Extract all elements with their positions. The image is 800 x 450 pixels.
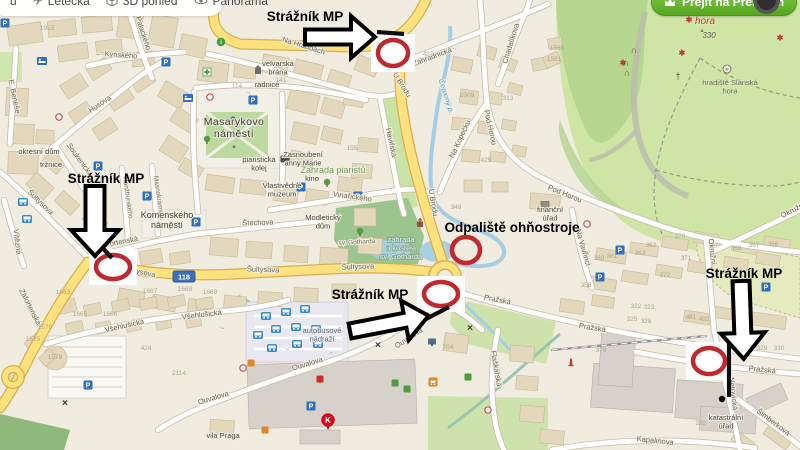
building (539, 429, 564, 445)
building (747, 311, 786, 329)
building (209, 237, 238, 257)
building (139, 248, 163, 266)
toolbar-item-panorama[interactable]: Panorama (186, 0, 276, 8)
building (197, 60, 229, 84)
map-toolbar: u ✈ Letecká 3D pohled Panorama (0, 0, 224, 16)
svg-text:✶: ✶ (231, 144, 236, 151)
bus-icon (253, 331, 263, 339)
svg-text:✱: ✱ (679, 49, 686, 58)
ring-icon (584, 221, 590, 227)
building (591, 295, 614, 309)
poi-label: piaristickákolej (242, 155, 276, 172)
house-number: 1667 (143, 288, 158, 295)
house-number: 557 (8, 437, 19, 444)
building (509, 345, 534, 363)
house-number: 1666 (103, 311, 118, 318)
street-label: Pražská (578, 321, 607, 334)
street-label: Vítězná (11, 229, 23, 256)
bus-icon (267, 344, 277, 352)
svg-text:P: P (764, 285, 769, 292)
greenbox-icon (465, 374, 472, 381)
svg-text:∩: ∩ (631, 45, 638, 55)
street-label: Záfortenská (17, 287, 43, 327)
greenbox-icon (392, 380, 399, 387)
svg-text:P: P (309, 404, 314, 411)
house-number: 1669 (203, 289, 218, 296)
house-number: 323 (644, 304, 655, 311)
svg-text:✕: ✕ (467, 324, 474, 333)
house-number: 372 (660, 272, 671, 279)
house-number: 348 (451, 204, 462, 211)
building (300, 430, 340, 444)
toolbar-partial-label: u (10, 0, 17, 8)
building (205, 174, 235, 194)
street-label: Pražská (748, 364, 777, 376)
svg-text:✱: ✱ (777, 34, 784, 43)
flower-icon: ✱ (686, 16, 693, 25)
mill-icon: ✕ (467, 324, 474, 333)
house-number: 2114 (172, 370, 186, 377)
building (515, 375, 538, 391)
parking-icon: P (94, 162, 103, 171)
house-number: 481 (686, 314, 697, 321)
pharmacy-icon (203, 68, 211, 76)
svg-text:P: P (194, 220, 199, 227)
bus-icon (300, 305, 310, 313)
kpin-icon: K (322, 414, 335, 431)
road-number-text: 118 (178, 273, 190, 282)
street-label: Šultysova (342, 261, 376, 271)
road-badges-layer: 118 (173, 271, 195, 282)
house-number: 425 (481, 157, 492, 164)
eye-icon (194, 0, 208, 6)
annotation-label: Strážník MP (267, 9, 344, 24)
building (92, 117, 118, 141)
street-label: Kapalinova (636, 434, 675, 447)
house-number: 367 (749, 242, 760, 249)
annotation-dot (719, 396, 725, 402)
shopO-icon (262, 427, 269, 434)
building (464, 180, 482, 192)
house-number: 424 (141, 345, 152, 352)
street-label: ← Kynského (95, 49, 138, 61)
ring-icon (207, 94, 213, 100)
bed-icon (37, 57, 47, 65)
dagger-icon: † (675, 71, 680, 81)
crown-icon (664, 0, 676, 7)
svg-text:→: → (245, 89, 252, 96)
bus-icon (18, 198, 28, 206)
svg-text:P: P (86, 383, 91, 390)
poi-label: 330 (702, 31, 716, 40)
building (36, 130, 54, 145)
building (321, 126, 344, 144)
toolbar-item-label: Panorama (213, 0, 268, 8)
monitor-icon (428, 339, 436, 347)
house-number: 1953 (40, 25, 55, 32)
building (354, 208, 376, 226)
poi-label: hora (695, 16, 715, 27)
house-number: 1576 (38, 324, 53, 331)
house-number: 358 (581, 282, 592, 289)
street-label: Šultysova (247, 264, 281, 274)
house-number: 325 (627, 316, 638, 323)
cave-icon: ∩ (624, 68, 631, 78)
building (81, 15, 112, 34)
ring-icon (240, 365, 246, 371)
toolbar-item-partial[interactable]: u (2, 0, 25, 8)
building (451, 56, 473, 73)
house-number: 313 (503, 95, 514, 102)
parking-icon: P (162, 58, 171, 67)
building (501, 119, 517, 131)
building (294, 288, 318, 303)
house-number: 368 (731, 245, 742, 252)
building (559, 298, 585, 314)
cart-icon (429, 378, 438, 387)
house-number: 328 (641, 318, 652, 325)
building (320, 97, 346, 118)
house-number: 482 (699, 316, 710, 323)
starcirc-icon: ✳ (723, 65, 731, 73)
svg-text:✱: ✱ (686, 16, 693, 25)
flower-icon: ✱ (777, 34, 784, 43)
building (167, 294, 186, 308)
house-number: 1581 (547, 56, 562, 63)
house-number: 1583 (550, 45, 565, 52)
dir-icon: → (218, 323, 227, 332)
building (492, 182, 508, 192)
memorial-icon (569, 359, 574, 367)
house-number: 370 (675, 233, 686, 240)
building (54, 190, 80, 215)
ring-icon (485, 407, 491, 413)
svg-text:†: † (675, 71, 680, 81)
bus-icon (22, 215, 32, 223)
parking-icon: P (143, 192, 152, 201)
building (489, 151, 506, 163)
house-number: 114 (232, 83, 243, 90)
house-number: 366 (768, 241, 779, 248)
svg-text:P: P (598, 275, 603, 282)
church-icon (417, 218, 423, 227)
house-number: 704 (443, 344, 454, 351)
parking-icon: P (762, 283, 771, 292)
annotation-label: Strážník MP (332, 287, 409, 302)
building (519, 405, 544, 423)
poi-label: radnice (255, 80, 280, 89)
dir-icon: → (245, 89, 252, 96)
building (290, 121, 319, 144)
cave-icon: ∩ (623, 58, 630, 68)
house-number: 329 (757, 345, 768, 352)
house-number: 362 (646, 242, 657, 249)
ring-icon (56, 114, 62, 120)
mill-icon: ✕ (375, 341, 382, 350)
bus-icon (261, 312, 271, 320)
house-number: 371 (681, 255, 692, 262)
svg-text:P: P (96, 164, 101, 171)
toolbar-item-label: Letecká (48, 0, 90, 8)
poi-label: kino (305, 174, 319, 183)
svg-text:P: P (164, 60, 169, 67)
annotation-label: Strážník MP (706, 266, 783, 281)
svg-text:✳: ✳ (725, 67, 729, 73)
house-number: 378 (596, 347, 607, 354)
building (621, 270, 648, 285)
building (57, 42, 89, 62)
toolbar-item-label: 3D pohled (123, 0, 178, 8)
svg-text:i: i (220, 39, 222, 46)
deco-icon: ✶ (231, 144, 236, 151)
house-number: 1663 (56, 289, 71, 296)
house-number: 1668 (178, 286, 193, 293)
parking-icon: P (249, 96, 258, 105)
toolbar-item-letecka[interactable]: ✈ Letecká (25, 0, 98, 8)
bus-icon (281, 308, 291, 316)
flower-icon: ✱ (679, 49, 686, 58)
info-icon: i (217, 38, 225, 46)
shopR-icon (317, 376, 324, 383)
poi-label: okresní dům (18, 147, 59, 156)
map-canvas[interactable]: 1953114141155423200931342534815831581360… (0, 0, 800, 450)
building (283, 245, 308, 263)
annotation-line (377, 32, 404, 34)
annotation-label: Odpaliště ohňostroje (444, 220, 580, 235)
building (598, 329, 636, 387)
house-number: 330 (774, 345, 785, 352)
svg-text:∩: ∩ (624, 68, 631, 78)
poi-label: vila Praga (206, 431, 240, 440)
bed-icon (183, 94, 193, 102)
poi-label: tržnice (40, 160, 62, 169)
parking-icon: P (1, 19, 10, 28)
house-number: 282 (696, 420, 707, 427)
svg-text:→: → (218, 323, 227, 332)
house-number: 2009 (460, 92, 475, 99)
map-screenshot: 1953114141155423200931342534815831581360… (0, 0, 800, 450)
toolbar-item-3d-pohled[interactable]: 3D pohled (98, 0, 186, 8)
street-label: Všehlušická (104, 316, 146, 334)
building (60, 73, 89, 99)
annotation-label: Strážník MP (68, 171, 145, 186)
bus-icon (271, 325, 281, 333)
greenbox-icon (404, 386, 411, 393)
building (245, 241, 272, 259)
house-number: 363 (635, 250, 646, 257)
house-number: 1578 (48, 354, 63, 361)
house-number: 155 (347, 145, 358, 152)
cube-3d-icon (106, 0, 118, 7)
house-number: 360 (594, 255, 605, 262)
house-number: 1575 (26, 336, 41, 343)
house-number: 1665 (73, 311, 88, 318)
svg-text:P: P (251, 98, 256, 105)
building (462, 149, 481, 163)
poi-label: Vlastivědnémuzeum (263, 181, 302, 198)
shopO-icon (248, 360, 255, 367)
parking-icon: P (616, 246, 625, 255)
street-label: Štechova (242, 217, 274, 227)
svg-text:K: K (325, 416, 331, 425)
building (357, 137, 378, 153)
svg-text:∩: ∩ (623, 58, 630, 68)
street-label: Chadalíkova (500, 21, 521, 64)
svg-text:✕: ✕ (375, 341, 382, 350)
bus-icon (292, 340, 302, 348)
svg-text:P: P (618, 248, 623, 255)
parking-icon: P (84, 381, 93, 390)
bus-icon (291, 323, 301, 331)
building (7, 22, 43, 47)
mill-icon: ✕ (62, 399, 69, 408)
cave-icon: ∩ (631, 45, 638, 55)
parking-icon: P (596, 273, 605, 282)
airplane-icon: ✈ (33, 0, 43, 8)
parking-icon: P (307, 402, 316, 411)
tree-icon (324, 179, 330, 187)
svg-text:P: P (145, 194, 150, 201)
building (507, 82, 523, 95)
annotation-red-circle (452, 237, 480, 263)
svg-text:P: P (3, 21, 8, 28)
building (169, 251, 190, 266)
svg-text:✕: ✕ (62, 399, 69, 408)
house-number: 322 (631, 303, 642, 310)
poi-label: Zahrada piaristů (300, 165, 365, 175)
